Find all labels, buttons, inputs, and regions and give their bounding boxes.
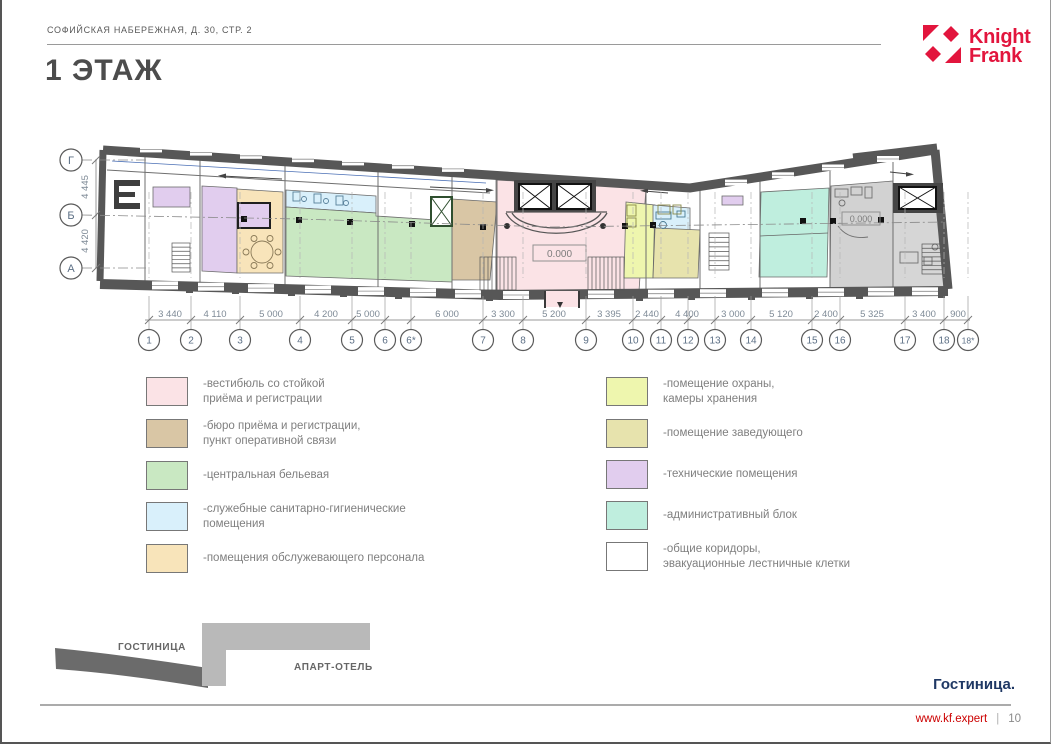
legend-item: -бюро приёма и регистрации, пункт операт… <box>146 419 586 449</box>
grid-axis-5: 5 <box>342 330 363 351</box>
legend-label: -помещение заведующего <box>663 426 803 441</box>
dimension-label: 4 110 <box>203 309 226 320</box>
dimension-label: 900 <box>950 309 966 320</box>
dimension-label: 5 120 <box>769 309 793 320</box>
svg-text:16: 16 <box>834 336 846 347</box>
grid-axis-11: 11 <box>651 330 672 351</box>
legend-item: -административный блок <box>606 501 1026 530</box>
row-axis-Б: Б <box>60 204 82 226</box>
dimension-label: 2 440 <box>635 309 659 320</box>
legend-swatch <box>146 377 188 406</box>
legend-item: -технические помещения <box>606 460 1026 489</box>
svg-text:3: 3 <box>237 336 243 347</box>
room-technical-3 <box>238 203 270 228</box>
legend-swatch <box>146 544 188 573</box>
svg-text:11: 11 <box>656 336 667 347</box>
footer-separator: | <box>996 713 999 725</box>
knight-frank-logo: Knight Frank <box>922 24 1031 69</box>
website-link[interactable]: www.kf.expert <box>916 713 988 725</box>
svg-text:Б: Б <box>67 210 74 222</box>
grid-axis-15: 15 <box>802 330 823 351</box>
room-manager <box>653 228 700 278</box>
dimension-label: 4 400 <box>675 309 699 320</box>
grid-axis-12: 12 <box>678 330 699 351</box>
svg-text:10: 10 <box>627 336 639 347</box>
grid-axis-6*: 6* <box>401 330 422 351</box>
page-title: 1 ЭТАЖ <box>45 54 163 88</box>
svg-text:5: 5 <box>349 336 355 347</box>
grid-axis-17: 17 <box>895 330 916 351</box>
legend-column-left: -вестибюль со стойкой приёма и регистрац… <box>146 377 586 585</box>
dimension-label: 5 000 <box>356 309 380 320</box>
room-security <box>624 202 655 278</box>
grid-axis-13: 13 <box>705 330 726 351</box>
legend-label: -вестибюль со стойкой приёма и регистрац… <box>203 377 325 407</box>
grid-axis-14: 14 <box>741 330 762 351</box>
svg-text:2: 2 <box>188 336 194 347</box>
grid-axis-16: 16 <box>830 330 851 351</box>
svg-text:0.000: 0.000 <box>547 249 572 260</box>
dimension-label: 2 400 <box>814 309 838 320</box>
room-technical-1 <box>153 187 190 207</box>
apart-hotel-label: АПАРТ-ОТЕЛЬ <box>294 662 373 673</box>
hotel-building-shape <box>55 648 208 688</box>
svg-text:Г: Г <box>68 155 74 167</box>
legend-swatch <box>606 501 648 530</box>
dimension-label: 3 440 <box>158 309 182 320</box>
section-caption: Гостиница. <box>933 676 1015 693</box>
elevator-icon <box>899 187 936 209</box>
dimension-label: 4 420 <box>80 229 91 253</box>
room-technical-2 <box>202 186 237 273</box>
room-staff <box>237 189 283 273</box>
svg-text:12: 12 <box>682 336 694 347</box>
page-number: 10 <box>1008 713 1021 725</box>
dimension-label: 4 445 <box>80 175 91 199</box>
legend-label: -бюро приёма и регистрации, пункт операт… <box>203 419 360 449</box>
svg-text:6: 6 <box>382 336 388 347</box>
legend-label: -технические помещения <box>663 467 797 482</box>
footer: www.kf.expert | 10 <box>916 713 1021 725</box>
grid-axis-4: 4 <box>290 330 311 351</box>
svg-text:4: 4 <box>297 336 303 347</box>
legend-item: -помещения обслужевающего персонала <box>146 544 586 573</box>
legend-label: -административный блок <box>663 508 797 523</box>
legend-swatch <box>606 460 648 489</box>
legend-swatch <box>146 502 188 531</box>
svg-text:18: 18 <box>938 336 950 347</box>
row-axis-А: А <box>60 257 82 279</box>
dimension-label: 4 200 <box>314 309 338 320</box>
legend-swatch <box>606 419 648 448</box>
legend-label: -помещения обслужевающего персонала <box>203 551 424 566</box>
svg-text:7: 7 <box>480 336 486 347</box>
header-divider <box>47 44 881 45</box>
legend-label: -центральная бельевая <box>203 468 329 483</box>
svg-text:0.000: 0.000 <box>850 214 873 224</box>
room-technical-4 <box>722 196 743 205</box>
floor-plan: 0.000 0.000 <box>40 118 1020 370</box>
legend-item: -служебные санитарно-гигиенические помещ… <box>146 502 586 532</box>
site-diagram: ГОСТИНИЦА АПАРТ-ОТЕЛЬ <box>40 606 440 706</box>
svg-text:18*: 18* <box>962 336 975 346</box>
dimension-label: 5 200 <box>542 309 566 320</box>
dimension-label: 3 000 <box>721 309 745 320</box>
grid-axis-9: 9 <box>576 330 597 351</box>
grid-axis-18: 18 <box>934 330 955 351</box>
knight-frank-logo-icon <box>922 24 962 69</box>
apart-hotel-shape <box>202 623 370 686</box>
grid-axis-6: 6 <box>375 330 396 351</box>
row-axis-Г: Г <box>60 149 82 171</box>
dimension-label: 3 300 <box>491 309 515 320</box>
svg-text:14: 14 <box>745 336 757 347</box>
room-sanitary-2 <box>653 205 690 230</box>
room-admin-block <box>759 188 829 277</box>
legend-item: -помещение заведующего <box>606 419 1026 448</box>
legend-swatch <box>606 542 648 571</box>
grid-axis-8: 8 <box>513 330 534 351</box>
grid-axis-3: 3 <box>230 330 251 351</box>
logo-line2: Frank <box>969 45 1022 67</box>
svg-text:15: 15 <box>806 336 818 347</box>
svg-text:8: 8 <box>520 336 526 347</box>
dimension-label: 3 400 <box>912 309 936 320</box>
room-gray-1 <box>830 181 893 291</box>
document-address: СОФИЙСКАЯ НАБЕРЕЖНАЯ, Д. 30, СТР. 2 <box>47 25 252 35</box>
svg-text:6*: 6* <box>406 336 416 347</box>
grid-axis-2: 2 <box>181 330 202 351</box>
dimension-label: 5 325 <box>860 309 884 320</box>
legend-swatch <box>146 461 188 490</box>
svg-text:1: 1 <box>146 336 152 347</box>
footer-divider <box>40 704 1011 706</box>
legend-swatch <box>606 377 648 406</box>
legend-label: -служебные санитарно-гигиенические помещ… <box>203 502 406 532</box>
elevator-icon <box>431 197 452 226</box>
legend-item: -общие коридоры, эвакуационные лестничны… <box>606 542 1026 572</box>
grid-axis-7: 7 <box>473 330 494 351</box>
grid-axis-1: 1 <box>139 330 160 351</box>
svg-text:17: 17 <box>899 336 911 347</box>
knight-frank-wordmark: Knight Frank <box>969 28 1031 66</box>
dimension-label: 6 000 <box>435 309 459 320</box>
main-entrance <box>545 291 579 308</box>
legend-label: -помещение охраны, камеры хранения <box>663 377 774 407</box>
legend-column-right: -помещение охраны, камеры хранения-помещ… <box>606 377 1026 584</box>
svg-text:А: А <box>67 263 75 275</box>
room-reception-bureau <box>452 199 497 280</box>
legend-item: -центральная бельевая <box>146 461 586 490</box>
legend-swatch <box>146 419 188 448</box>
dimension-label: 5 000 <box>259 309 283 320</box>
svg-text:9: 9 <box>583 336 589 347</box>
legend-item: -вестибюль со стойкой приёма и регистрац… <box>146 377 586 407</box>
dimension-label: 3 395 <box>597 309 621 320</box>
hotel-label: ГОСТИНИЦА <box>118 642 186 653</box>
legend-item: -помещение охраны, камеры хранения <box>606 377 1026 407</box>
legend-label: -общие коридоры, эвакуационные лестничны… <box>663 542 850 572</box>
elevator-icon <box>519 184 551 209</box>
grid-axis-10: 10 <box>623 330 644 351</box>
svg-text:13: 13 <box>709 336 721 347</box>
grid-axis-18*: 18* <box>958 330 979 351</box>
